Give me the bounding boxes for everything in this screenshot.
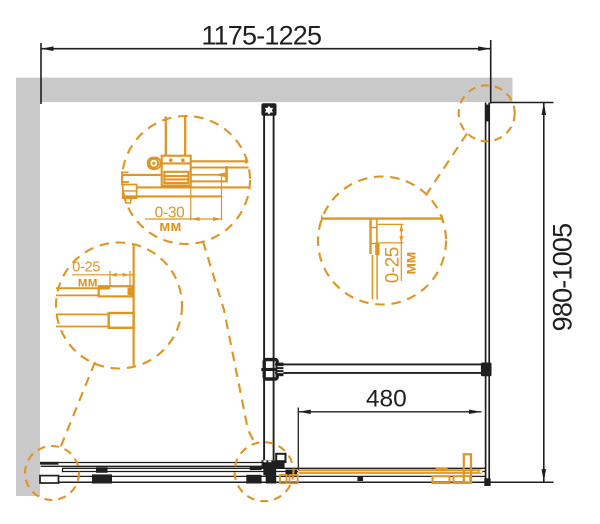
svg-text:мм: мм [159,218,181,235]
svg-text:480: 480 [366,386,407,413]
svg-text:мм: мм [403,252,420,275]
svg-text:980-1005: 980-1005 [547,224,577,332]
svg-text:0-25: 0-25 [382,247,403,283]
svg-text:0-25: 0-25 [72,260,100,276]
svg-text:1175-1225: 1175-1225 [201,21,321,51]
svg-text:мм: мм [78,274,98,289]
